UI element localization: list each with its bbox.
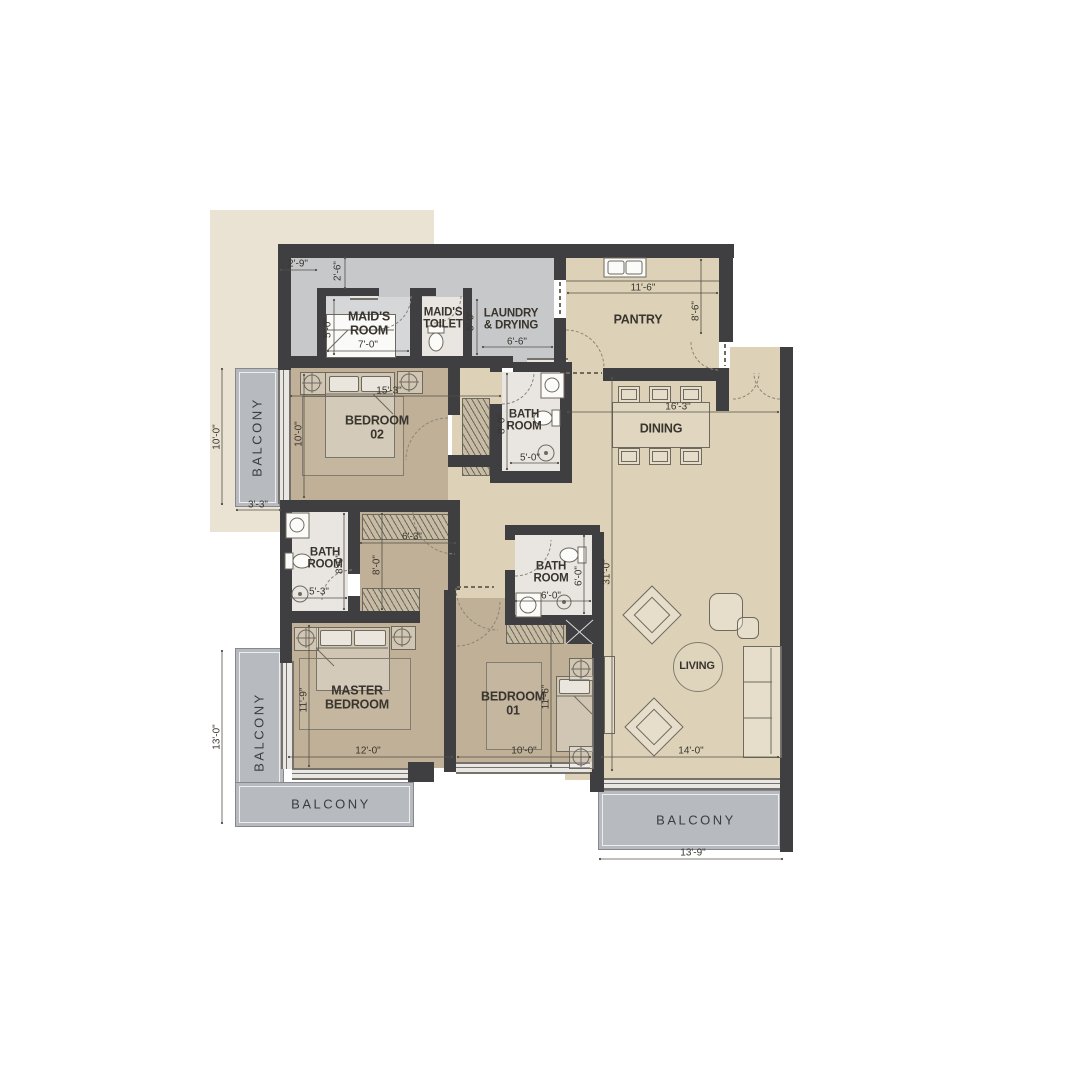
dim-bedroom01-w: 10'-0" xyxy=(511,746,536,757)
label-line: BEDROOM xyxy=(481,690,545,704)
dining-chair-3 xyxy=(680,386,702,403)
dim-master-bath-d: 8'-0" xyxy=(335,554,346,574)
dim-bath1-w: 5'-0" xyxy=(520,453,540,464)
wall-entry-horizontal xyxy=(603,368,729,381)
dim-top-offset-w: 2'-9" xyxy=(288,259,308,270)
dim-master-w: 12'-0" xyxy=(355,746,380,757)
wall-left-upper xyxy=(278,258,291,370)
room-label-bedroom01: BEDROOM 01 xyxy=(481,691,545,718)
master-pillow-right xyxy=(354,630,386,646)
dim-laundry-d: 5'-0" xyxy=(466,311,477,331)
wall-maid-toilet-divider xyxy=(410,288,422,358)
dim-pantry-w: 11'-6" xyxy=(631,283,656,294)
dining-chair-1 xyxy=(618,386,640,403)
shaft-box xyxy=(566,620,593,644)
dim-balcony3-w: 13'-9" xyxy=(680,848,705,859)
wall-bath2-top xyxy=(505,525,600,535)
room-label-bath1: BATH ROOM xyxy=(507,409,542,434)
dim-maid-room-d: 5'-0" xyxy=(323,318,334,338)
room-label-dining: DINING xyxy=(640,422,683,436)
wall-pantry-left-a xyxy=(554,258,566,280)
wall-maid-top xyxy=(317,288,379,296)
bedroom02-nightstand-left xyxy=(300,372,326,395)
dim-pantry-d: 8'-6" xyxy=(691,301,702,321)
dim-bath2-d: 6'-0" xyxy=(574,566,585,586)
dim-top-offset-d: 2'-6" xyxy=(333,261,344,281)
room-label-pantry: PANTRY xyxy=(614,313,663,327)
master-pillow-left xyxy=(320,630,352,646)
wall-bedroom02-bottom xyxy=(280,500,458,512)
wall-entry-stub xyxy=(716,381,729,411)
wall-top xyxy=(278,244,734,258)
room-label-bedroom02: BEDROOM 02 xyxy=(345,415,409,442)
bedroom01-pillow xyxy=(559,679,590,694)
dim-master-d: 11'-9" xyxy=(299,688,310,713)
living-side-table xyxy=(737,617,759,639)
wall-pantry-right xyxy=(719,258,733,342)
wall-master-corner-pier xyxy=(408,762,434,782)
label-line: 02 xyxy=(370,427,384,441)
dim-dressing-d: 8'-0" xyxy=(372,555,383,575)
bedroom02-balcony-window xyxy=(278,370,291,504)
wall-corridor-master xyxy=(448,500,460,590)
wall-mbath-bottom xyxy=(280,611,420,623)
dim-bedroom01-d: 11'-6" xyxy=(541,685,552,710)
dim-master-bath-w: 5'-3" xyxy=(309,587,329,598)
dim-bath1-d: 8'-0" xyxy=(497,414,508,434)
dim-bedroom02-d: 10'-0" xyxy=(294,421,305,446)
label-line: LIVING xyxy=(679,660,714,672)
wall-bath1-right xyxy=(560,362,572,483)
dim-bath2-w: 6'-0" xyxy=(541,591,561,602)
dining-chair-6 xyxy=(680,448,702,465)
wall-left-mid xyxy=(280,512,292,617)
bedroom01-wardrobe xyxy=(506,624,564,644)
label-line: BEDROOM xyxy=(325,697,389,711)
label-line: MAID'S xyxy=(424,307,463,319)
label-line: BEDROOM xyxy=(345,414,409,428)
label-line: MAID'S xyxy=(348,310,390,324)
wall-bath2-left-a xyxy=(505,525,515,540)
floor-plan-canvas: MAID'S ROOM MAID'S TOILET LAUNDRY & DRYI… xyxy=(0,0,1080,1080)
room-label-laundry: LAUNDRY & DRYING xyxy=(484,308,538,333)
dim-maid-room-w: 7'-0" xyxy=(358,340,378,351)
dim-balcony1-d: 10'-0" xyxy=(212,424,223,449)
label-line: BATH xyxy=(509,409,539,421)
balcony-label-bottom-left-vertical: BALCONY xyxy=(252,692,267,772)
master-balcony-window xyxy=(281,661,294,769)
label-line: ROOM xyxy=(507,421,542,433)
wall-right-exterior xyxy=(780,347,793,852)
balcony-label-bottom-right: BALCONY xyxy=(656,813,736,828)
dining-chair-4 xyxy=(618,448,640,465)
living-balcony-window xyxy=(604,778,780,790)
living-console xyxy=(604,656,615,734)
label-line: MASTER xyxy=(331,684,383,698)
master-bottom-window xyxy=(292,768,410,780)
room-label-maids-room: MAID'S ROOM xyxy=(348,311,390,338)
dim-laundry-w: 6'-6" xyxy=(507,337,527,348)
dim-bedroom02-w: 15'-3" xyxy=(376,386,401,397)
room-label-bath2: BATH ROOM xyxy=(534,561,569,586)
wall-bath1-left-a xyxy=(490,362,502,372)
bedroom02-pillow-left xyxy=(329,376,359,392)
wall-bedroom02-right xyxy=(448,368,460,415)
label-line: LAUNDRY xyxy=(484,308,538,320)
wall-bedroom02-bath1-link xyxy=(448,455,502,467)
label-line: ROOM xyxy=(534,573,569,585)
wall-living-pier xyxy=(590,772,604,792)
living-sofa xyxy=(743,646,782,758)
dining-chair-5 xyxy=(649,448,671,465)
room-label-maids-toilet: MAID'S TOILET xyxy=(423,307,462,332)
label-line: DINING xyxy=(640,421,683,435)
wall-mbath-divider-a xyxy=(348,512,360,574)
wall-pantry-left-b xyxy=(554,318,566,368)
label-line: BATH xyxy=(536,561,566,573)
room-label-living: LIVING xyxy=(679,661,714,673)
dim-balcony2-d: 13'-0" xyxy=(212,724,223,749)
bedroom01-nightstand-bottom xyxy=(569,746,594,769)
dining-chair-2 xyxy=(649,386,671,403)
room-label-master-bedroom: MASTER BEDROOM xyxy=(325,685,389,712)
label-line: PANTRY xyxy=(614,312,663,326)
dim-dining-w: 16'-3" xyxy=(665,402,690,413)
balcony-label-bottom-left-horizontal: BALCONY xyxy=(291,797,371,812)
label-line: TOILET xyxy=(423,319,462,331)
dim-living-d: 31'-0" xyxy=(602,559,613,584)
wall-bath1-bottom xyxy=(490,471,572,483)
bedroom01-nightstand-top xyxy=(569,658,594,681)
label-line: ROOM xyxy=(350,323,388,337)
wall-left-lower xyxy=(280,611,292,663)
wall-master-bedroom01 xyxy=(444,590,456,772)
wall-toilet-top-piece xyxy=(422,288,436,296)
dim-dressing-w: 6'-3" xyxy=(402,532,422,543)
dim-balcony1-w: 3'-3" xyxy=(248,500,268,511)
master-nightstand-right xyxy=(391,626,416,650)
balcony-label-top-left: BALCONY xyxy=(250,397,265,477)
label-line: 01 xyxy=(506,703,520,717)
master-nightstand-left xyxy=(294,627,319,651)
label-line: & DRYING xyxy=(484,320,538,332)
dim-living-w: 14'-0" xyxy=(678,746,703,757)
